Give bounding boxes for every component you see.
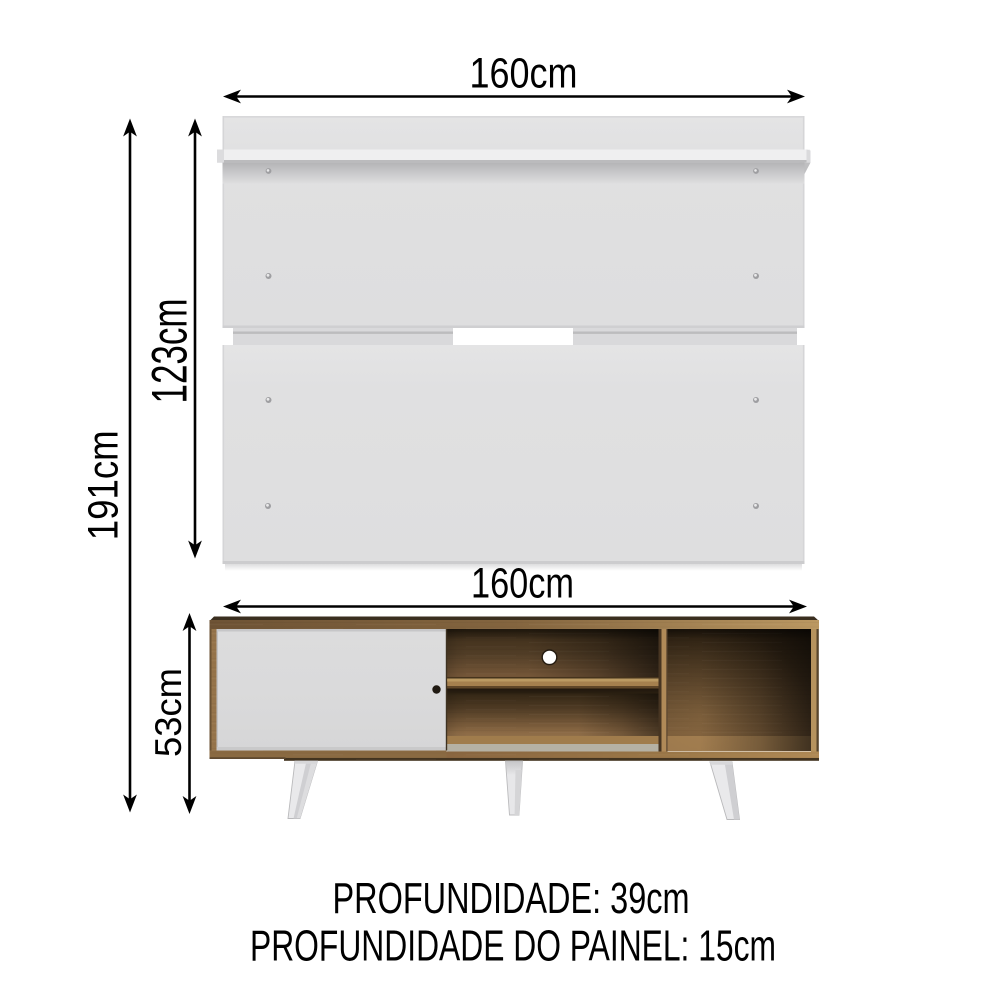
svg-text:191cm: 191cm	[81, 430, 128, 540]
svg-text:53cm: 53cm	[147, 668, 189, 757]
svg-text:160cm: 160cm	[471, 561, 574, 608]
svg-text:PROFUNDIDADE: 39cm: PROFUNDIDADE: 39cm	[333, 874, 690, 923]
svg-text:123cm: 123cm	[141, 299, 198, 404]
svg-text:PROFUNDIDADE DO PAINEL: 15cm: PROFUNDIDADE DO PAINEL: 15cm	[250, 922, 776, 971]
svg-text:160cm: 160cm	[470, 51, 578, 98]
